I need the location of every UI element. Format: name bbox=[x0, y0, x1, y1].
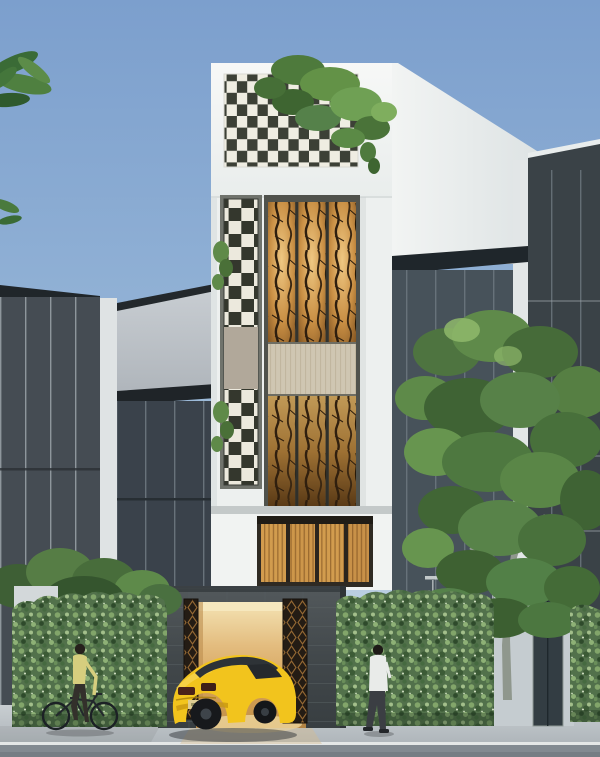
scene bbox=[0, 0, 600, 757]
cyclist-head bbox=[75, 644, 85, 654]
pedestrian-head bbox=[373, 645, 383, 655]
lower-amber-lattice-window bbox=[268, 396, 356, 506]
cyclist-shirt bbox=[73, 654, 87, 685]
window-assembly bbox=[264, 195, 360, 513]
car-taillight-right bbox=[201, 683, 216, 691]
car-taillight-left bbox=[178, 687, 195, 695]
far-right-hedge bbox=[570, 605, 600, 722]
right-ivy-hedge bbox=[336, 590, 494, 726]
pedestrian-shirt bbox=[369, 655, 388, 691]
first-floor-amber-window bbox=[257, 516, 373, 587]
upper-amber-lattice-window bbox=[268, 202, 356, 342]
slat-spandrel-band bbox=[268, 342, 356, 396]
